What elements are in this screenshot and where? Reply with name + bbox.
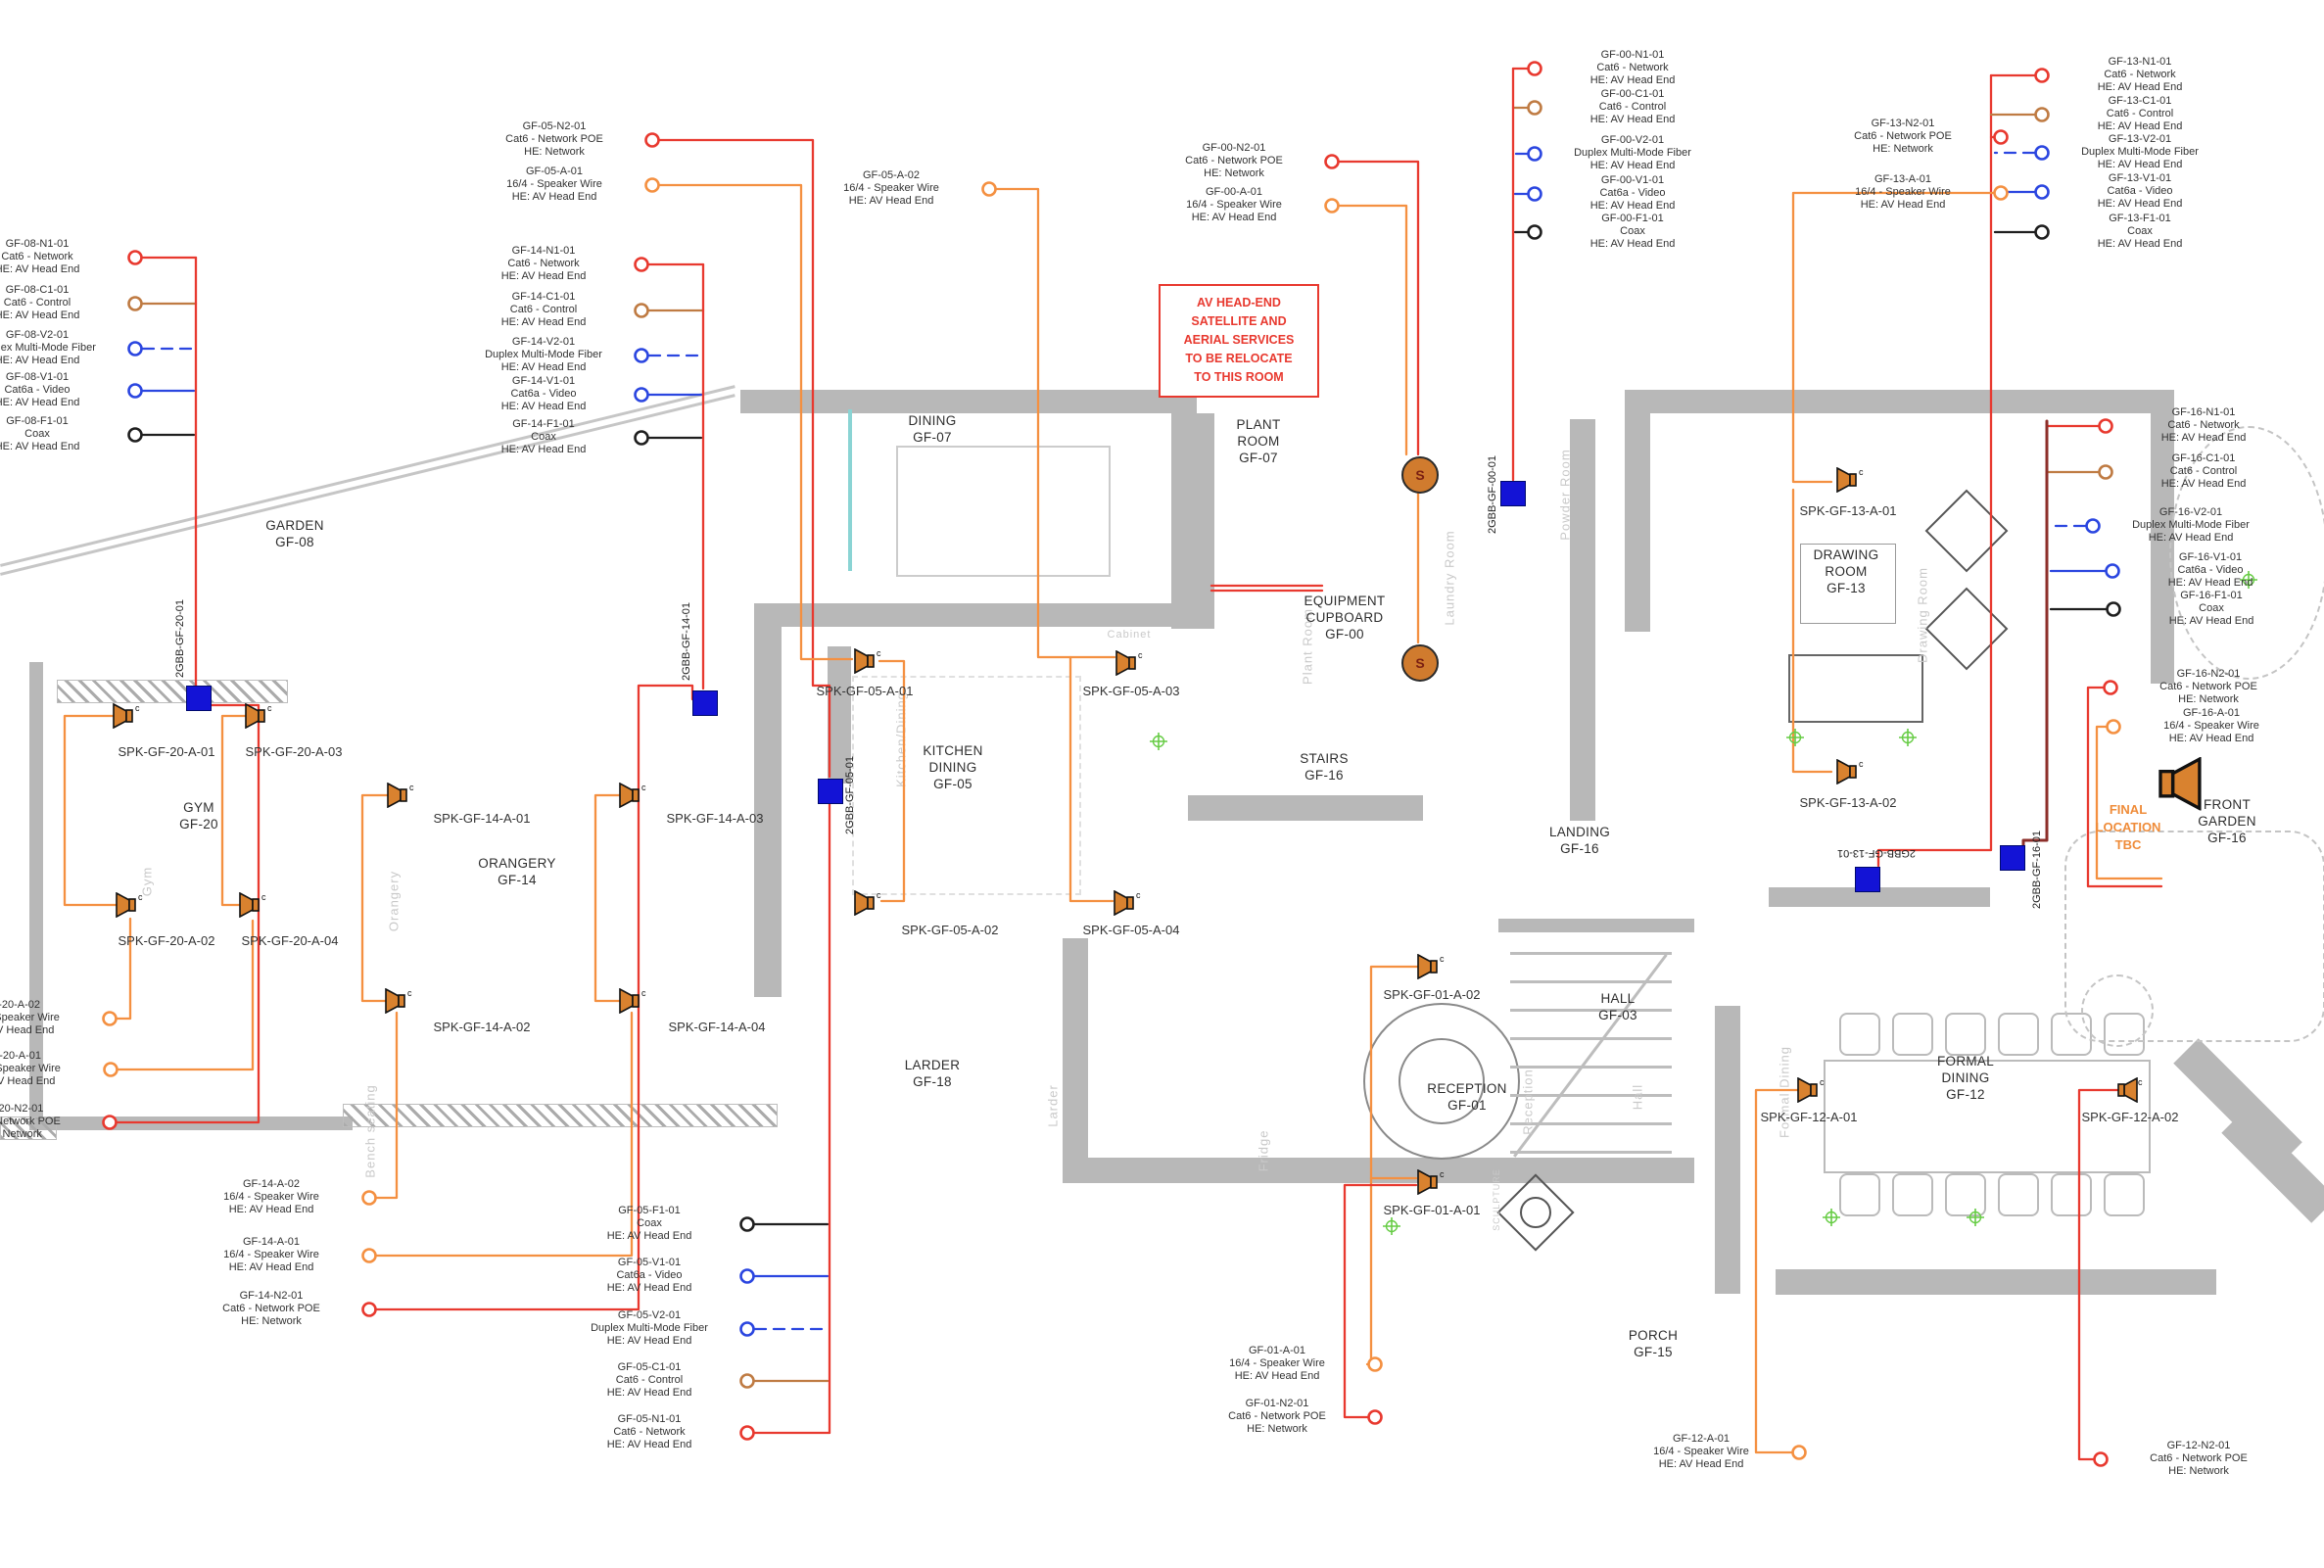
speaker-horn-icon: c <box>2113 1077 2143 1103</box>
svg-text:c: c <box>1859 467 1864 477</box>
green-cross-marker <box>1150 733 1167 750</box>
speaker-icon-s20a4: c <box>237 892 266 923</box>
cable-terminal-gf08c1 <box>129 298 142 310</box>
cable-terminal-gf13n2 <box>1995 131 2008 144</box>
cable-terminal-gf00v1 <box>1529 188 1541 201</box>
cable-terminal-gf00n1 <box>1529 63 1541 75</box>
cable-terminal-gf16v2 <box>2087 520 2100 533</box>
cable-callout-gf16n1: GF-16-N1-01 Cat6 - Network HE: AV Head E… <box>2117 406 2290 445</box>
cable-terminal-gf16f1 <box>2108 603 2120 616</box>
cable-terminal-gf13f1 <box>2036 226 2049 239</box>
cable-callout-gf01a1: GF-01-A-01 16/4 - Speaker Wire HE: AV He… <box>1191 1345 1363 1383</box>
ceiling-marker <box>1150 733 1167 755</box>
speaker-icon-s05a4: c <box>1112 890 1141 921</box>
cable-callout-gf14c1: GF-14-C1-01 Cat6 - Control HE: AV Head E… <box>457 291 630 329</box>
keypad-kp20 <box>186 686 212 711</box>
cable-terminal-gf16n2 <box>2105 682 2117 694</box>
speaker-label-s13a2: SPK-GF-13-A-02 <box>1765 795 1931 810</box>
speaker-label-s20a3: SPK-GF-20-A-03 <box>211 744 377 759</box>
note-line: TO THIS ROOM <box>1161 368 1317 387</box>
speaker-label-s14a4: SPK-GF-14-A-04 <box>634 1020 800 1034</box>
cable-callout-gf08f1: GF-08-F1-01 Coax HE: AV Head End <box>0 415 123 453</box>
cable-callout-gf14f1: GF-14-F1-01 Coax HE: AV Head End <box>457 418 630 456</box>
cable-terminal-gf12a1 <box>1793 1447 1806 1459</box>
cable-callout-gf08n1: GF-08-N1-01 Cat6 - Network HE: AV Head E… <box>0 238 123 276</box>
keypad-kp14 <box>692 690 718 716</box>
cable-terminal-gf13n1 <box>2036 70 2049 82</box>
cable-terminal-gf00a1 <box>1326 200 1339 213</box>
note-line: SATELLITE AND <box>1161 312 1317 331</box>
cable-callout-gf01n2: GF-01-N2-01 Cat6 - Network POE HE: Netwo… <box>1191 1398 1363 1436</box>
cable-terminal-gf16n1 <box>2100 420 2112 433</box>
cable-callout-gf08c1: GF-08-C1-01 Cat6 - Control HE: AV Head E… <box>0 284 123 322</box>
cable-terminal-gf08n1 <box>129 252 142 264</box>
ceiling-marker <box>1383 1217 1400 1240</box>
speaker-icon-s14a2: c <box>383 988 412 1019</box>
speaker-label-s14a3: SPK-GF-14-A-03 <box>632 811 798 826</box>
speaker-horn-icon: c <box>1114 650 1143 676</box>
svg-text:c: c <box>1136 890 1141 900</box>
speaker-icon-s05a2: c <box>852 890 881 921</box>
speaker-icon-s05a1: c <box>852 648 881 679</box>
room-label-drawing: DRAWING ROOM GF-13 <box>1763 546 1929 596</box>
relocation-note: AV HEAD-END SATELLITE AND AERIAL SERVICE… <box>1159 284 1319 398</box>
svg-text:c: c <box>261 892 266 902</box>
ceiling-marker <box>1786 729 1804 751</box>
cable-callout-gf20a1: GF-20-A-01 16/4 - Speaker Wire HE: AV He… <box>0 1050 99 1088</box>
ceiling-marker <box>1823 1209 1840 1231</box>
cable-terminal-gf14a2b <box>363 1192 376 1205</box>
cable-callout-gf13f1: GF-13-F1-01 Coax HE: AV Head End <box>2054 213 2226 251</box>
cable-terminal-gf14n2b <box>363 1304 376 1316</box>
green-cross-marker <box>1823 1209 1840 1226</box>
speaker-icon-s13a1: c <box>1834 467 1864 498</box>
green-cross-marker <box>1967 1209 1984 1226</box>
cable-run-speaker_wire <box>595 795 620 1001</box>
cable-run-speaker_wire <box>1793 193 2001 482</box>
cable-callout-gf00n2: GF-00-N2-01 Cat6 - Network POE HE: Netwo… <box>1148 142 1320 180</box>
cable-terminal-gf00f1 <box>1529 226 1541 239</box>
cable-terminal-gf13c1 <box>2036 109 2049 121</box>
svg-text:c: c <box>407 988 412 998</box>
cable-callout-gf13n1: GF-13-N1-01 Cat6 - Network HE: AV Head E… <box>2054 56 2226 94</box>
svg-text:c: c <box>138 892 143 902</box>
cable-callout-gf00v1: GF-00-V1-01 Cat6a - Video HE: AV Head En… <box>1546 174 1719 213</box>
cable-callout-gf13a1: GF-13-A-01 16/4 - Speaker Wire HE: AV He… <box>1817 173 1989 212</box>
speaker-horn-icon: c <box>1834 759 1864 784</box>
speaker-horn-icon: c <box>852 890 881 916</box>
cable-callout-gf14n1: GF-14-N1-01 Cat6 - Network HE: AV Head E… <box>457 245 630 283</box>
cable-callout-gf20n2: GF-20-N2-01 Cat6 - Network POE HE: Netwo… <box>0 1103 98 1141</box>
speaker-horn-icon: c <box>1112 890 1141 916</box>
speaker-label-s05a1: SPK-GF-05-A-01 <box>782 684 948 698</box>
svg-text:c: c <box>1138 650 1143 660</box>
speaker-label-s14a2: SPK-GF-14-A-02 <box>399 1020 565 1034</box>
cable-callout-gf00v2: GF-00-V2-01 Duplex Multi-Mode Fiber HE: … <box>1546 134 1719 172</box>
cable-terminal-gf05c1b <box>741 1375 754 1388</box>
speaker-icon-s14a3: c <box>617 783 646 813</box>
room-label-equip: EQUIPMENT CUPBOARD GF-00 <box>1261 593 1428 642</box>
floor-plan: AV HEAD-END SATELLITE AND AERIAL SERVICE… <box>0 0 2324 1568</box>
svg-text:c: c <box>267 703 272 713</box>
cable-run-speaker_wire <box>660 185 852 659</box>
room-label-formal: FORMAL DINING GF-12 <box>1882 1053 2049 1103</box>
cable-terminal-gf05v2b <box>741 1323 754 1336</box>
speaker-horn-icon: c <box>383 988 412 1014</box>
speaker-label-s01a1: SPK-GF-01-A-01 <box>1349 1203 1515 1217</box>
speaker-horn-icon: c <box>1415 954 1445 979</box>
room-label-landing: LANDING GF-16 <box>1496 824 1663 857</box>
room-label-porch: PORCH GF-15 <box>1570 1327 1736 1360</box>
cable-terminal-gf13v2 <box>2036 147 2049 160</box>
cable-callout-gf12a1: GF-12-A-01 16/4 - Speaker Wire HE: AV He… <box>1615 1433 1787 1471</box>
speaker-icon-s01a2: c <box>1415 954 1445 984</box>
speaker-label-s01a2: SPK-GF-01-A-02 <box>1349 987 1515 1002</box>
cable-callout-gf14v2: GF-14-V2-01 Duplex Multi-Mode Fiber HE: … <box>457 336 630 374</box>
svg-text:c: c <box>641 783 646 792</box>
speaker-horn-icon: c <box>243 703 272 729</box>
cable-callout-gf00c1: GF-00-C1-01 Cat6 - Control HE: AV Head E… <box>1546 88 1719 126</box>
ceiling-marker <box>1899 729 1917 751</box>
room-label-plant: PLANT ROOM GF-07 <box>1175 416 1342 466</box>
cable-terminal-gf20a2 <box>104 1013 117 1025</box>
cable-run-network <box>660 140 830 777</box>
svg-text:c: c <box>1440 1169 1445 1179</box>
cable-terminal-gf00v2 <box>1529 148 1541 161</box>
cable-callout-gf00a1: GF-00-A-01 16/4 - Speaker Wire HE: AV He… <box>1148 186 1320 224</box>
cable-terminal-gf14v2 <box>636 350 648 362</box>
speaker-horn-icon: c <box>111 703 140 729</box>
cable-terminal-gf00c1 <box>1529 102 1541 115</box>
cable-callout-gf05f1b: GF-05-F1-01 Coax HE: AV Head End <box>563 1205 735 1243</box>
speaker-horn-icon: c <box>1834 467 1864 493</box>
svg-text:c: c <box>409 783 414 792</box>
cable-callout-gf05n2: GF-05-N2-01 Cat6 - Network POE HE: Netwo… <box>468 120 640 159</box>
keypad-label-kp13: 2GBB-GF-13-01 <box>1837 847 1916 859</box>
speaker-label-s12a1: SPK-GF-12-A-01 <box>1726 1110 1892 1124</box>
cable-callout-gf13n2: GF-13-N2-01 Cat6 - Network POE HE: Netwo… <box>1817 118 1989 156</box>
cable-callout-gf16a1: GF-16-A-01 16/4 - Speaker Wire HE: AV He… <box>2125 707 2298 745</box>
cable-callout-gf08v2: GF-08-V2-01 Duplex Multi-Mode Fiber HE: … <box>0 329 123 367</box>
ceiling-marker <box>1967 1209 1984 1231</box>
green-cross-marker <box>1786 729 1804 746</box>
cable-callout-gf05v1b: GF-05-V1-01 Cat6a - Video HE: AV Head En… <box>563 1257 735 1295</box>
room-label-orangery: ORANGERY GF-14 <box>434 855 600 888</box>
cable-run-speaker_wire <box>1340 206 1406 454</box>
cable-terminal-gf05a1 <box>646 179 659 192</box>
room-label-larder: LARDER GF-18 <box>849 1057 1016 1090</box>
cable-run-network <box>2079 1090 2117 1459</box>
cable-terminal-gf12n2 <box>2095 1453 2108 1466</box>
cable-terminal-gf14f1 <box>636 432 648 445</box>
keypad-label-kp16: 2GBB-GF-16-01 <box>2031 831 2043 909</box>
cable-callout-gf16f1: GF-16-F1-01 Coax HE: AV Head End <box>2125 590 2298 628</box>
speaker-icon-s14a4: c <box>617 988 646 1019</box>
cable-callout-gf00f1: GF-00-F1-01 Coax HE: AV Head End <box>1546 213 1719 251</box>
cable-callout-gf16v1: GF-16-V1-01 Cat6a - Video HE: AV Head En… <box>2124 551 2297 590</box>
service-node-s1: S <box>1401 456 1439 494</box>
cable-terminal-gf14n1 <box>636 259 648 271</box>
note-line: AV HEAD-END <box>1161 294 1317 312</box>
speaker-label-s14a1: SPK-GF-14-A-01 <box>399 811 565 826</box>
cable-callout-gf14a1b: GF-14-A-01 16/4 - Speaker Wire HE: AV He… <box>185 1236 357 1274</box>
keypad-label-kp05: 2GBB-GF-05-01 <box>844 756 856 834</box>
speaker-horn-icon: c <box>385 783 414 808</box>
final-location-tbc-note: FINAL LOCATION TBC <box>2069 801 2187 854</box>
cable-terminal-gf05f1b <box>741 1218 754 1231</box>
green-cross-marker <box>1899 729 1917 746</box>
cable-callout-gf05c1b: GF-05-C1-01 Cat6 - Control HE: AV Head E… <box>563 1361 735 1400</box>
cable-runs-layer <box>0 0 2324 1568</box>
cable-terminal-gf05v1b <box>741 1270 754 1283</box>
svg-text:c: c <box>1859 759 1864 769</box>
cable-run-trunk_maroon <box>2023 421 2047 846</box>
cable-terminal-gf16a1 <box>2108 721 2120 734</box>
speaker-label-s05a2: SPK-GF-05-A-02 <box>867 923 1033 937</box>
cable-callout-gf16n2: GF-16-N2-01 Cat6 - Network POE HE: Netwo… <box>2122 668 2295 706</box>
cable-terminal-gf05a2 <box>983 183 996 196</box>
speaker-icon-s14a1: c <box>385 783 414 813</box>
speaker-icon-s20a3: c <box>243 703 272 734</box>
cable-run-speaker_wire <box>1367 967 1422 1364</box>
cable-terminal-gf08v2 <box>129 343 142 356</box>
speaker-icon-s20a1: c <box>111 703 140 734</box>
keypad-kp13 <box>1855 867 1880 892</box>
cable-callout-gf14a2b: GF-14-A-02 16/4 - Speaker Wire HE: AV He… <box>185 1178 357 1216</box>
svg-text:c: c <box>641 988 646 998</box>
cable-callout-gf16c1: GF-16-C1-01 Cat6 - Control HE: AV Head E… <box>2117 452 2290 491</box>
cable-terminal-gf14v1 <box>636 389 648 402</box>
cable-terminal-gf20n2 <box>104 1117 117 1129</box>
room-label-gym: GYM GF-20 <box>116 799 282 832</box>
cable-terminal-gf14a1b <box>363 1250 376 1262</box>
cable-terminal-gf05n1b <box>741 1427 754 1440</box>
speaker-label-s13a1: SPK-GF-13-A-01 <box>1765 503 1931 518</box>
cable-terminal-gf16c1 <box>2100 466 2112 479</box>
svg-text:c: c <box>877 890 881 900</box>
room-label-reception: RECEPTION GF-01 <box>1384 1080 1550 1114</box>
cable-callout-gf13c1: GF-13-C1-01 Cat6 - Control HE: AV Head E… <box>2054 95 2226 133</box>
cable-terminal-gf00n2 <box>1326 156 1339 168</box>
cable-callout-gf20a2: GF-20-A-02 16/4 - Speaker Wire HE: AV He… <box>0 999 98 1037</box>
cable-callout-gf05v2b: GF-05-V2-01 Duplex Multi-Mode Fiber HE: … <box>563 1309 735 1348</box>
speaker-icon-s01a1: c <box>1415 1169 1445 1200</box>
speaker-icon-s12a1: c <box>1795 1077 1825 1108</box>
cable-terminal-gf20a1 <box>105 1064 118 1076</box>
room-label-kitchen: KITCHEN DINING GF-05 <box>870 742 1036 792</box>
tbc-line: TBC <box>2069 836 2187 854</box>
cable-callout-gf13v2: GF-13-V2-01 Duplex Multi-Mode Fiber HE: … <box>2054 133 2226 171</box>
speaker-horn-icon: c <box>617 988 646 1014</box>
speaker-horn-icon: c <box>1795 1077 1825 1103</box>
svg-text:c: c <box>1440 954 1445 964</box>
room-label-dining: DINING GF-07 <box>849 412 1016 446</box>
cable-terminal-gf13v1 <box>2036 186 2049 199</box>
keypad-label-kp00: 2GBB-GF-00-01 <box>1487 455 1498 534</box>
cable-run-speaker_wire <box>377 1013 397 1198</box>
cable-terminal-gf05n2 <box>646 134 659 147</box>
speaker-icon-s20a2: c <box>114 892 143 923</box>
cable-callout-gf08v1: GF-08-V1-01 Cat6a - Video HE: AV Head En… <box>0 371 123 409</box>
note-line: AERIAL SERVICES <box>1161 331 1317 350</box>
cable-callout-gf16v2: GF-16-V2-01 Duplex Multi-Mode Fiber HE: … <box>2105 506 2277 545</box>
cable-callout-gf00n1: GF-00-N1-01 Cat6 - Network HE: AV Head E… <box>1546 49 1719 87</box>
svg-text:c: c <box>1820 1077 1825 1087</box>
cable-run-speaker_wire <box>362 795 388 1001</box>
speaker-icon-s12a2: c <box>2113 1077 2143 1108</box>
svg-text:c: c <box>877 648 881 658</box>
speaker-horn-icon: c <box>617 783 646 808</box>
keypad-kp05 <box>818 779 843 804</box>
room-label-garden: GARDEN GF-08 <box>212 517 378 550</box>
cable-terminal-gf08v1 <box>129 385 142 398</box>
cable-terminal-gf16v1 <box>2107 565 2119 578</box>
cable-callout-gf05n1b: GF-05-N1-01 Cat6 - Network HE: AV Head E… <box>563 1413 735 1451</box>
service-node-s2: S <box>1401 644 1439 682</box>
keypad-kp16 <box>2000 845 2025 871</box>
cable-terminal-gf14c1 <box>636 305 648 317</box>
cable-terminal-gf08f1 <box>129 429 142 442</box>
cable-callout-gf12n2: GF-12-N2-01 Cat6 - Network POE HE: Netwo… <box>2112 1440 2285 1478</box>
keypad-label-kp14: 2GBB-GF-14-01 <box>681 602 692 681</box>
cable-callout-gf05a2: GF-05-A-02 16/4 - Speaker Wire HE: AV He… <box>805 169 977 208</box>
note-line: TO BE RELOCATE <box>1161 350 1317 368</box>
cable-run-speaker_wire <box>1756 1090 1802 1452</box>
svg-text:c: c <box>2138 1077 2143 1087</box>
cable-terminal-gf01n2 <box>1369 1411 1382 1424</box>
cable-terminal-gf01a1 <box>1369 1358 1382 1371</box>
svg-text:c: c <box>135 703 140 713</box>
cable-callout-gf14n2b: GF-14-N2-01 Cat6 - Network POE HE: Netwo… <box>185 1290 357 1328</box>
speaker-label-s20a4: SPK-GF-20-A-04 <box>207 933 373 948</box>
cable-terminal-gf13a1 <box>1995 187 2008 200</box>
speaker-icon-s05a3: c <box>1114 650 1143 681</box>
speaker-label-s12a2: SPK-GF-12-A-02 <box>2047 1110 2213 1124</box>
tbc-line: LOCATION <box>2069 819 2187 836</box>
green-cross-marker <box>1383 1217 1400 1235</box>
speaker-icon-s13a2: c <box>1834 759 1864 789</box>
keypad-label-kp20: 2GBB-GF-20-01 <box>174 599 186 678</box>
speaker-horn-icon: c <box>852 648 881 674</box>
keypad-kp00 <box>1500 481 1526 506</box>
cable-callout-gf14v1: GF-14-V1-01 Cat6a - Video HE: AV Head En… <box>457 375 630 413</box>
room-label-stairs: STAIRS GF-16 <box>1241 750 1407 784</box>
speaker-horn-icon: c <box>1415 1169 1445 1195</box>
speaker-label-s05a4: SPK-GF-05-A-04 <box>1048 923 1214 937</box>
cable-callout-gf05a1: GF-05-A-01 16/4 - Speaker Wire HE: AV He… <box>468 166 640 204</box>
speaker-horn-icon: c <box>237 892 266 918</box>
tbc-line: FINAL <box>2069 801 2187 819</box>
speaker-horn-icon: c <box>114 892 143 918</box>
room-label-hall: HALL GF-03 <box>1535 990 1701 1023</box>
speaker-label-s05a3: SPK-GF-05-A-03 <box>1048 684 1214 698</box>
cable-callout-gf13v1: GF-13-V1-01 Cat6a - Video HE: AV Head En… <box>2054 172 2226 211</box>
